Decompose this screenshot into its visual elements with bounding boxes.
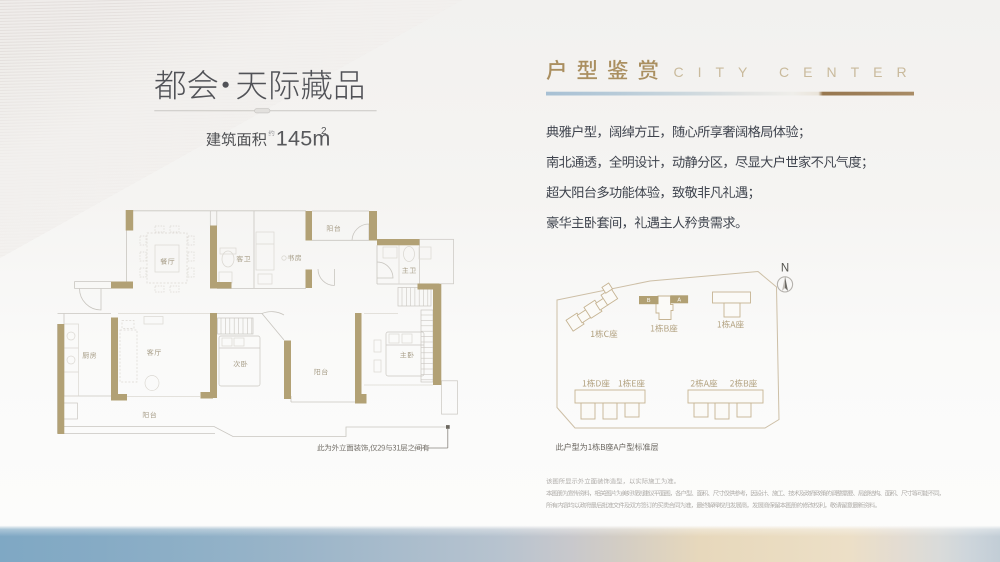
svg-text:N: N — [781, 262, 789, 274]
svg-text:CITY CENTER: CITY CENTER — [674, 64, 921, 80]
svg-text:2: 2 — [321, 126, 327, 137]
svg-text:B: B — [647, 298, 651, 304]
svg-text:A: A — [677, 298, 681, 304]
